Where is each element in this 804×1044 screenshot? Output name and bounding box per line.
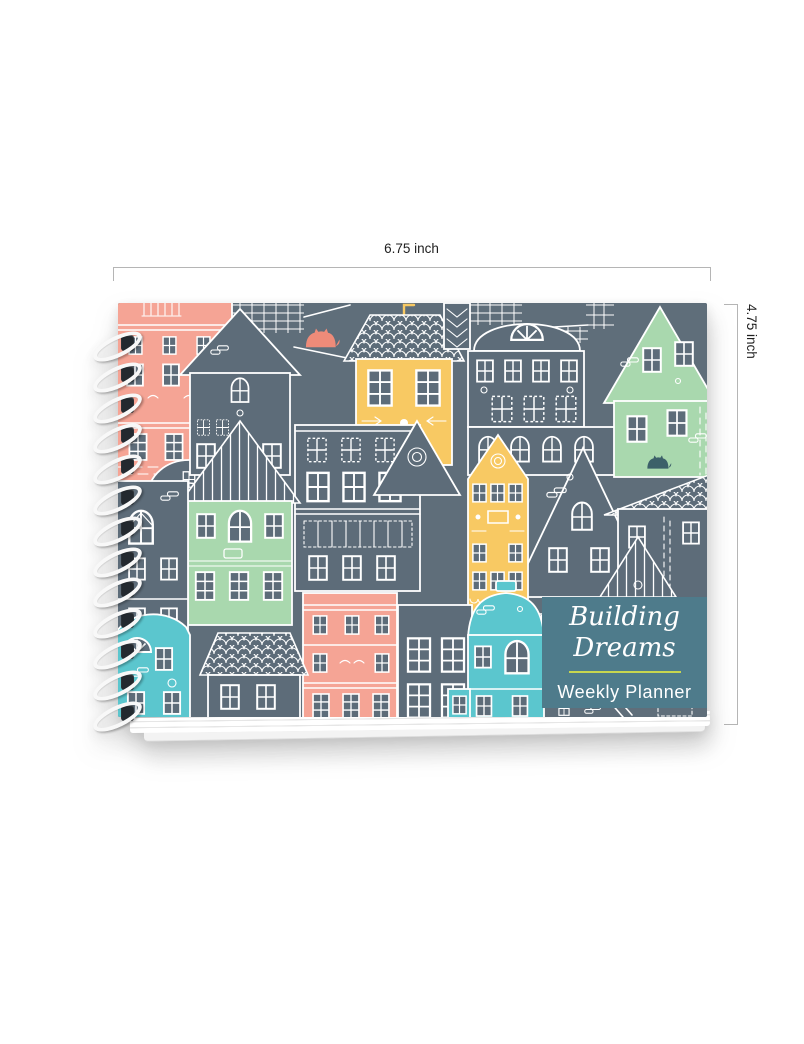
- height-dimension-label: 4.75 inch: [744, 304, 759, 723]
- chimney-herringbone: [444, 303, 470, 349]
- width-dimension-label: 6.75 inch: [113, 241, 710, 256]
- badge-title-line1: Building: [569, 602, 680, 633]
- height-dimension-bracket: [724, 304, 738, 725]
- planner-notebook: Building Dreams Weekly Planner: [118, 303, 707, 717]
- width-dimension-bracket: [113, 267, 711, 281]
- house-scale-roof-bottom: [200, 633, 308, 717]
- badge-divider: [569, 671, 681, 673]
- product-mockup-scene: 6.75 inch 4.75 inch: [0, 0, 804, 1044]
- house-salmon-bottom: [303, 593, 397, 717]
- badge-subtitle: Weekly Planner: [557, 682, 691, 703]
- badge-title-line2: Dreams: [573, 633, 675, 664]
- cover-badge: Building Dreams Weekly Planner: [542, 597, 707, 708]
